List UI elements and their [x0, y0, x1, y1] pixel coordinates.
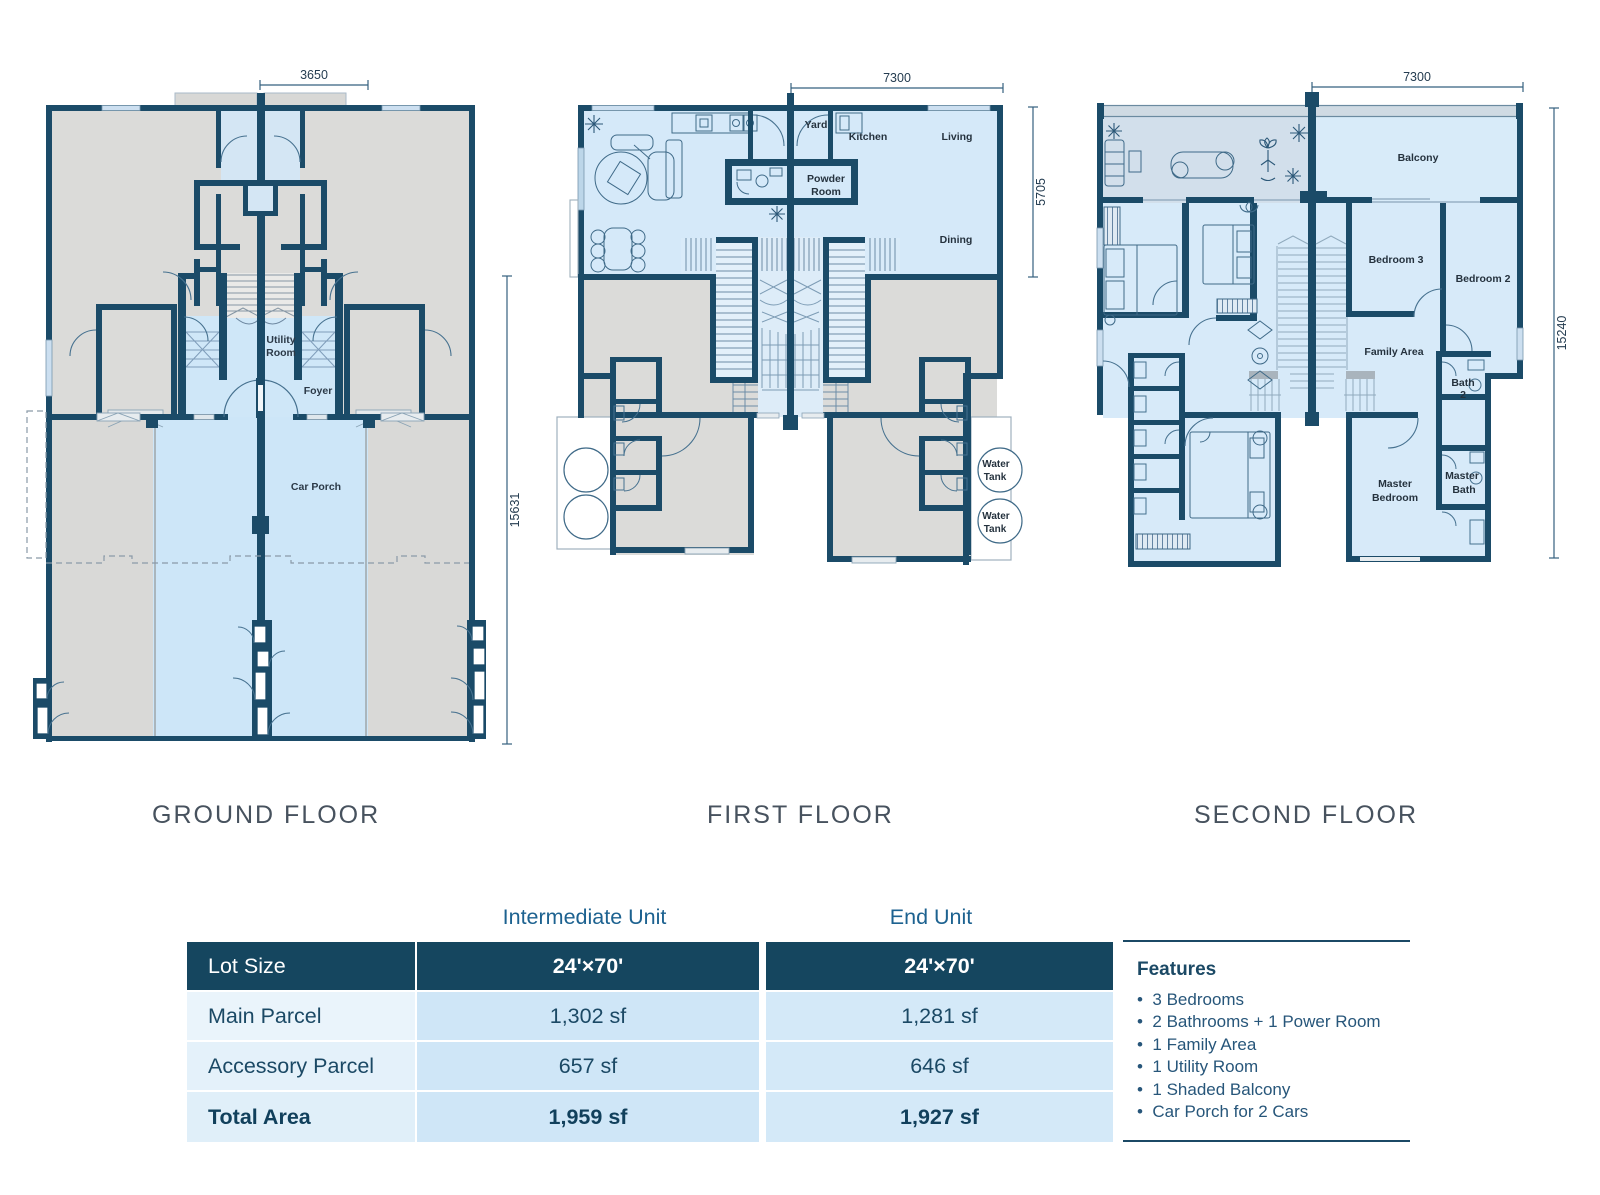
svg-text:Family Area: Family Area: [1364, 346, 1423, 358]
svg-text:Bedroom: Bedroom: [1372, 492, 1418, 504]
svg-text:3650: 3650: [300, 68, 328, 82]
svg-text:Tank: Tank: [984, 472, 1007, 483]
svg-text:7300: 7300: [1403, 70, 1431, 84]
svg-text:Master: Master: [1445, 470, 1479, 482]
svg-text:Foyer: Foyer: [304, 385, 333, 397]
svg-text:Room: Room: [811, 186, 841, 198]
svg-text:Master: Master: [1378, 478, 1412, 490]
svg-text:Kitchen: Kitchen: [849, 131, 888, 143]
svg-text:Room: Room: [266, 347, 296, 359]
svg-text:15240: 15240: [1555, 316, 1569, 351]
svg-text:Bedroom 3: Bedroom 3: [1369, 254, 1424, 266]
svg-text:15631: 15631: [508, 493, 522, 528]
svg-text:Bath: Bath: [1451, 377, 1474, 389]
svg-text:Powder: Powder: [807, 173, 845, 185]
svg-text:Bedroom 2: Bedroom 2: [1456, 273, 1511, 285]
svg-text:Water: Water: [982, 459, 1010, 470]
svg-text:Bath: Bath: [1452, 484, 1475, 496]
svg-text:Balcony: Balcony: [1398, 152, 1439, 164]
svg-text:Tank: Tank: [984, 524, 1007, 535]
svg-text:2: 2: [1460, 389, 1466, 401]
svg-text:Car Porch: Car Porch: [291, 481, 341, 493]
svg-text:Living: Living: [942, 131, 973, 143]
svg-text:5705: 5705: [1034, 178, 1048, 206]
svg-text:7300: 7300: [883, 71, 911, 85]
svg-text:Water: Water: [982, 511, 1010, 522]
svg-text:Yard: Yard: [805, 119, 828, 131]
svg-text:Utility: Utility: [266, 334, 295, 346]
svg-text:Dining: Dining: [940, 234, 973, 246]
